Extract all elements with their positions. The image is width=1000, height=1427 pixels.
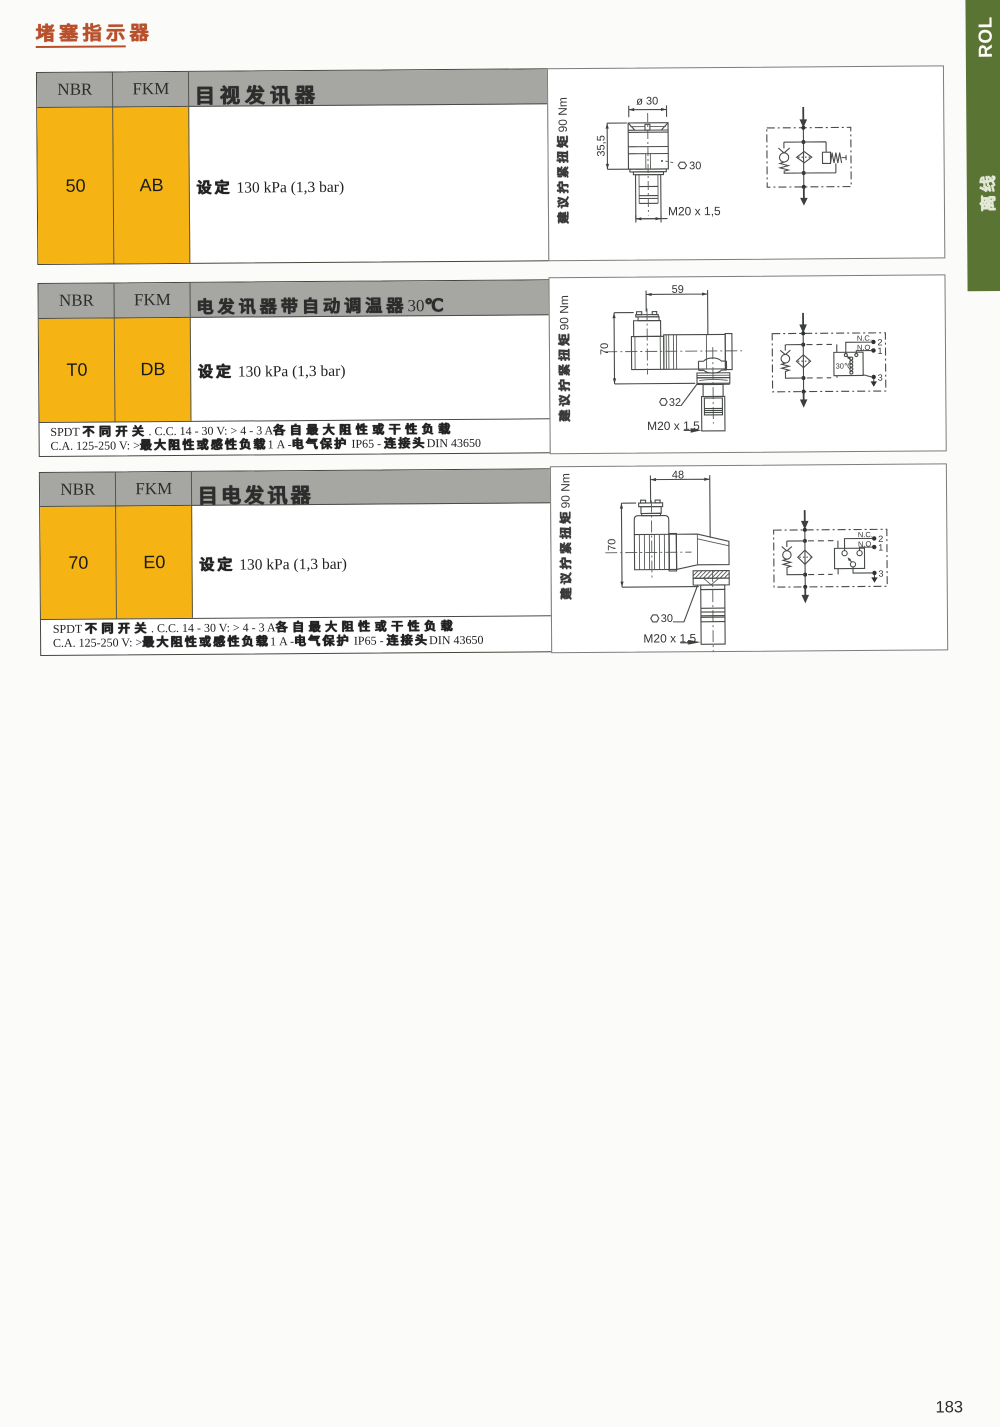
svg-text:70: 70	[606, 539, 618, 551]
svg-text:N.O.: N.O.	[857, 343, 872, 352]
svg-text:N.C.: N.C.	[858, 530, 873, 539]
svg-text:3: 3	[878, 569, 883, 579]
svg-text:35,5: 35,5	[595, 135, 607, 157]
svg-text:ø 30: ø 30	[636, 95, 658, 107]
svg-text:N.O.: N.O.	[858, 540, 873, 549]
svg-text:30: 30	[689, 160, 701, 172]
svg-text:N.C.: N.C.	[857, 334, 872, 343]
svg-text:70: 70	[599, 343, 611, 355]
svg-text:1: 1	[878, 542, 883, 552]
svg-text:30: 30	[661, 613, 673, 625]
svg-text:1: 1	[877, 346, 882, 356]
svg-text:M20 x 1,5: M20 x 1,5	[668, 204, 721, 218]
svg-text:3: 3	[878, 373, 883, 383]
svg-text:32: 32	[669, 397, 681, 409]
